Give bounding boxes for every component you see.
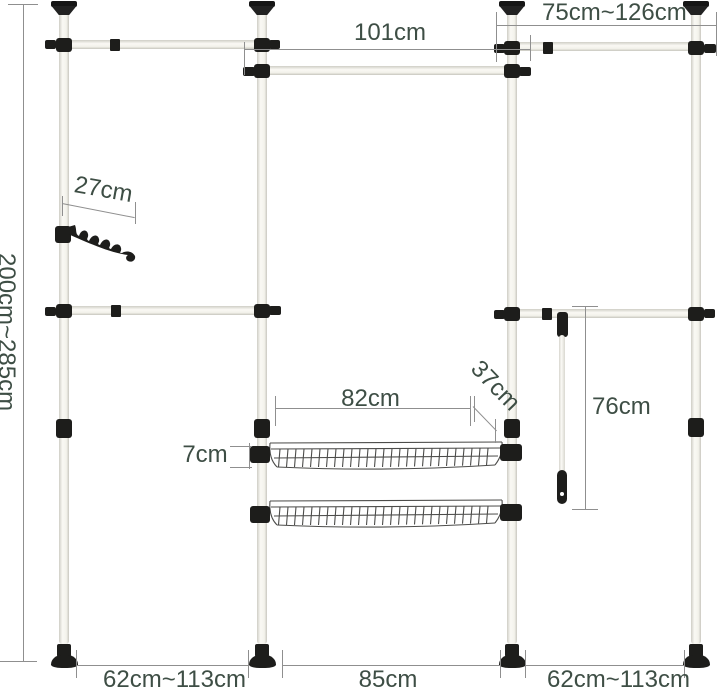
hanging-rod [559, 335, 565, 473]
top-left-bar-adjuster [110, 39, 120, 51]
mid-left-bar-end-nub-left [45, 307, 56, 316]
mid-left-bar-clamp-p1 [56, 304, 72, 318]
pole-2-top-cap-taper [249, 6, 275, 15]
dim-75-126-label: 75cm~126cm [542, 1, 672, 25]
dim-bottom-middle-label: 85cm [338, 668, 438, 692]
dim-37-line [473, 406, 497, 431]
dim-7-label: 7cm [180, 443, 230, 467]
dim-bottom-left-label: 62cm~113cm [103, 668, 225, 692]
top-left-bar-end-nub-right [269, 40, 280, 49]
dim-height-line [23, 4, 24, 662]
mid-left-bar [64, 306, 262, 315]
dim-7-tick-bottom [230, 467, 252, 468]
dim-27-tick-left [62, 196, 63, 216]
dim-37-tick-left [474, 396, 475, 422]
dim-101-line [244, 49, 530, 50]
dim-27-tick-right [135, 202, 136, 224]
dim-bottom-middle-tick-right [500, 650, 501, 678]
mid-right-bar-clamp-p3 [504, 307, 520, 321]
pole-4-adjust-collar [688, 418, 704, 437]
hanging-rod-top-connector [557, 312, 568, 337]
dim-82-tick-right [470, 396, 471, 426]
dim-101-tick-right [530, 35, 531, 61]
pole-1-top-cap-taper [51, 6, 77, 15]
top-middle-bar-clamp-p3 [504, 64, 520, 78]
dim-bottom-left-tick-right [248, 650, 249, 678]
pole-1-adjust-collar [56, 419, 72, 438]
upper-basket-clamp-right [500, 444, 522, 461]
top-left-bar [64, 40, 262, 49]
dim-75-126-tick-right [716, 12, 717, 56]
top-left-bar-clamp-p1 [56, 38, 72, 52]
dim-37-tick-right [495, 419, 496, 443]
dim-82-label: 82cm [333, 387, 408, 411]
dim-bottom-middle-tick-left [282, 650, 283, 678]
mid-right-bar [512, 309, 696, 318]
top-right-bar-adjuster [543, 42, 553, 54]
dim-75-126-tick-left [496, 12, 497, 62]
pole-2-foot-base [249, 655, 276, 668]
hanging-rod-grip-hole [560, 492, 564, 496]
dim-76-tick-bottom [572, 509, 598, 510]
top-middle-bar [262, 66, 512, 75]
dim-76-label: 76cm [592, 395, 651, 419]
lower-basket [266, 498, 506, 532]
pole-4 [691, 12, 701, 644]
dim-76-tick-top [572, 306, 598, 307]
wardrobe-rack-diagram: 200cm~285cm 101cm 75cm~126cm 27cm 82cm 3… [0, 0, 720, 693]
pole-4-top-cap-taper [683, 6, 709, 15]
mid-left-bar-adjuster [111, 305, 121, 317]
dim-height-tick-bottom [0, 661, 37, 662]
upper-basket [266, 440, 506, 474]
lower-basket-clamp-right [500, 504, 522, 521]
pole-3-top-cap-taper [499, 6, 525, 15]
mid-right-bar-end-nub-right [704, 309, 715, 318]
pole-2-adjust-collar [254, 419, 270, 438]
lower-basket-clamp-left [250, 506, 270, 523]
dim-82-tick-left [275, 396, 276, 426]
dim-bottom-right-label: 62cm~113cm [547, 668, 667, 692]
top-right-bar-clamp-p3 [504, 41, 520, 55]
mid-left-bar-end-nub-right [269, 306, 281, 315]
pole-3 [507, 12, 517, 644]
top-middle-bar-clamp-p2 [254, 64, 270, 78]
pole-3-adjust-collar [504, 419, 520, 438]
pole-3-foot-base [499, 655, 526, 668]
top-right-bar-end-nub-right [704, 44, 716, 53]
pole-1-foot-base [51, 655, 78, 668]
top-right-bar-clamp-p4 [688, 41, 704, 55]
upper-basket-clamp-left [250, 446, 270, 463]
top-right-bar [512, 42, 696, 51]
dim-height-label: 200cm~285cm [0, 253, 18, 411]
mid-left-bar-clamp-p2 [254, 304, 270, 318]
top-left-bar-end-nub [45, 40, 56, 49]
mid-right-bar-clamp-p4 [688, 307, 704, 321]
dim-bottom-left-tick-left [76, 650, 77, 678]
pole-2 [257, 12, 267, 644]
hook-rack-icon [68, 225, 148, 263]
dim-height-tick-top [8, 4, 38, 5]
hanging-rod-grip [557, 470, 567, 504]
dim-7-tick-top [230, 446, 252, 447]
dim-27-label: 27cm [72, 173, 133, 207]
dim-bottom-right-tick-left [525, 650, 526, 678]
top-middle-bar-end-nub-right [519, 67, 531, 76]
dim-101-tick-left [244, 42, 245, 75]
dim-101-label: 101cm [345, 21, 435, 45]
dim-76-line [585, 306, 586, 510]
pole-1 [59, 12, 69, 644]
mid-right-bar-adjuster [542, 308, 552, 320]
